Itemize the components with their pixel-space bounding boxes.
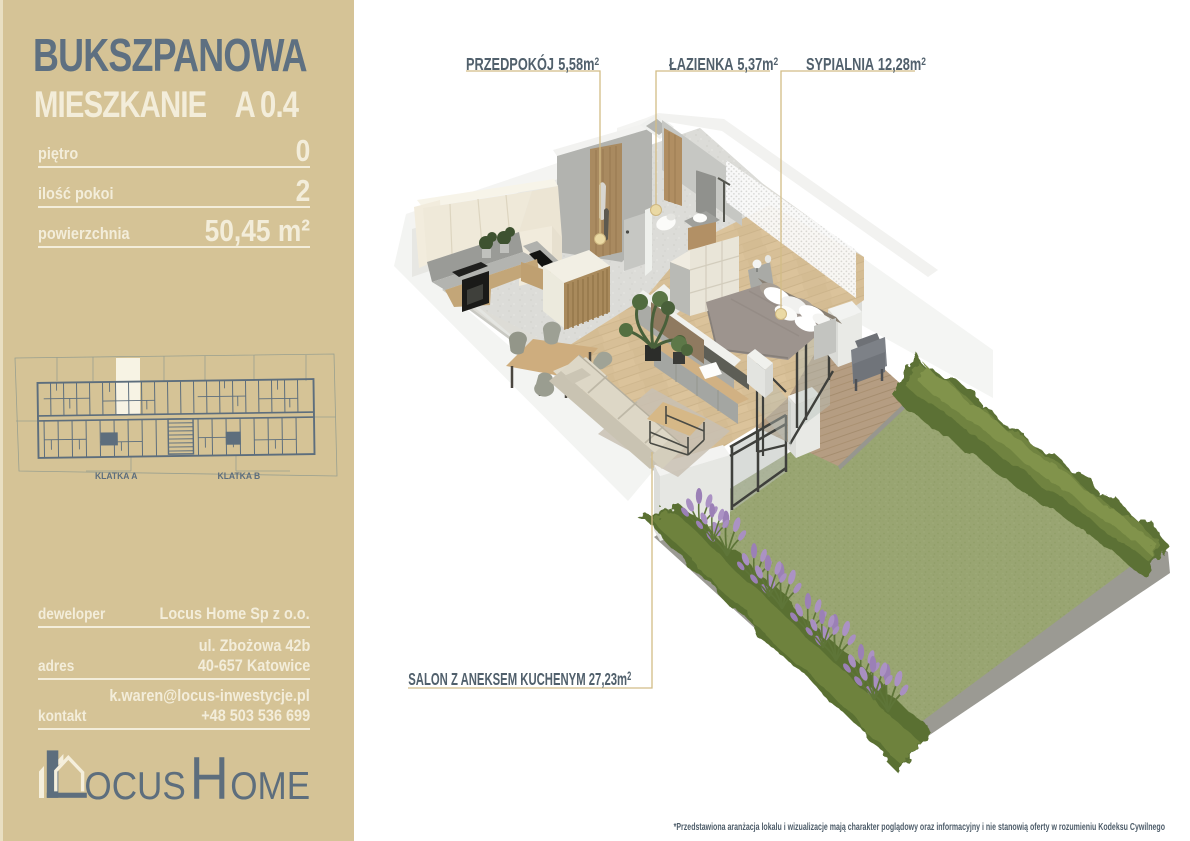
svg-text:SYPIALNIA 12,28m2: SYPIALNIA 12,28m2	[806, 55, 926, 74]
svg-text:ŁAZIENKA 5,37m2: ŁAZIENKA 5,37m2	[669, 55, 779, 74]
svg-text:SALON Z ANEKSEM KUCHENYM 27,23: SALON Z ANEKSEM KUCHENYM 27,23m2	[408, 671, 631, 690]
svg-text:*Przedstawiona aranżacja lokal: *Przedstawiona aranżacja lokalu i wizual…	[674, 821, 1166, 833]
svg-text:PRZEDPOKÓJ 5,58m2: PRZEDPOKÓJ 5,58m2	[466, 54, 599, 75]
